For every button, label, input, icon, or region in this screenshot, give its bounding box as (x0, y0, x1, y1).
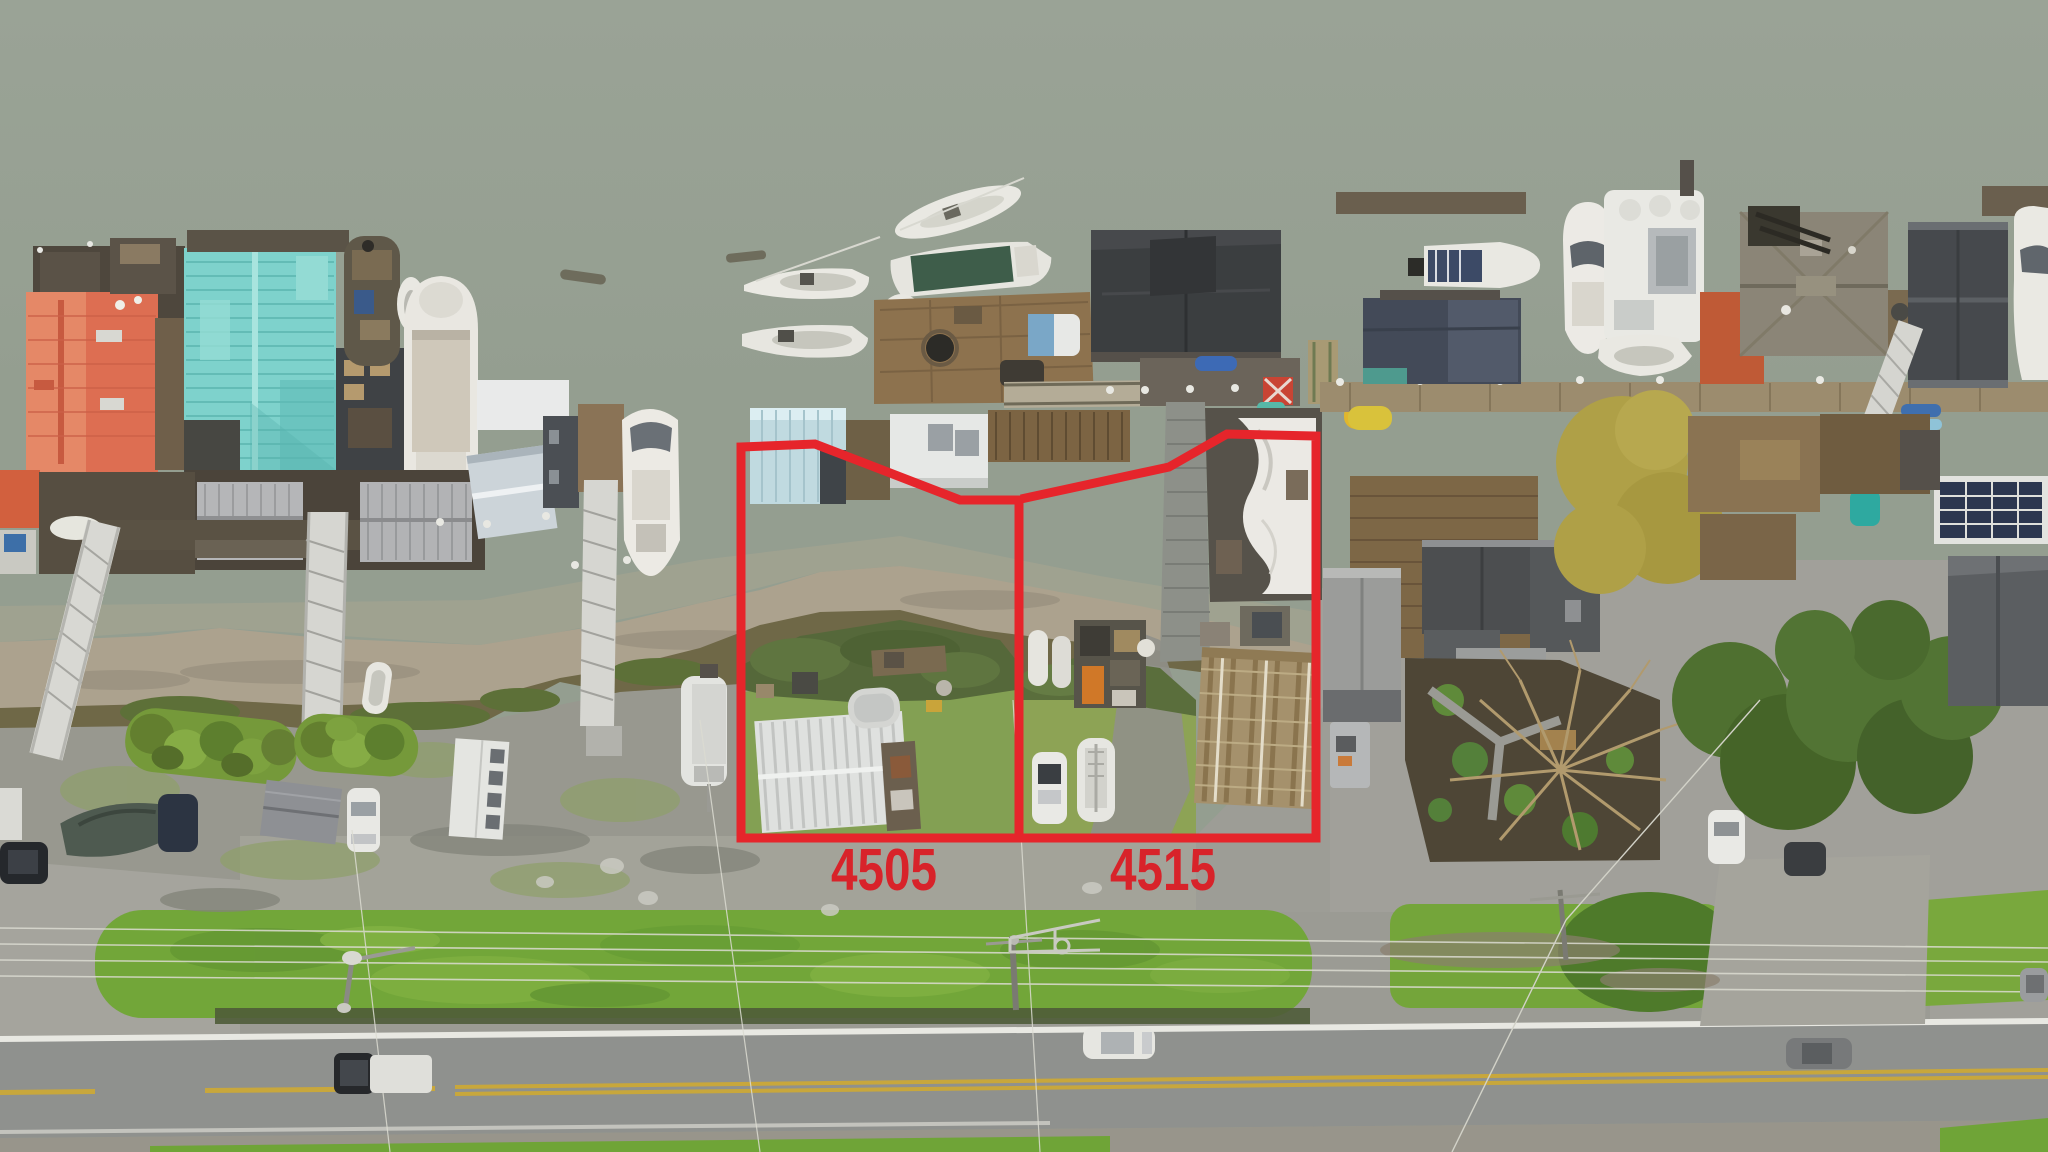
svg-text:4505: 4505 (831, 837, 937, 903)
svg-text:4515: 4515 (1110, 837, 1216, 903)
